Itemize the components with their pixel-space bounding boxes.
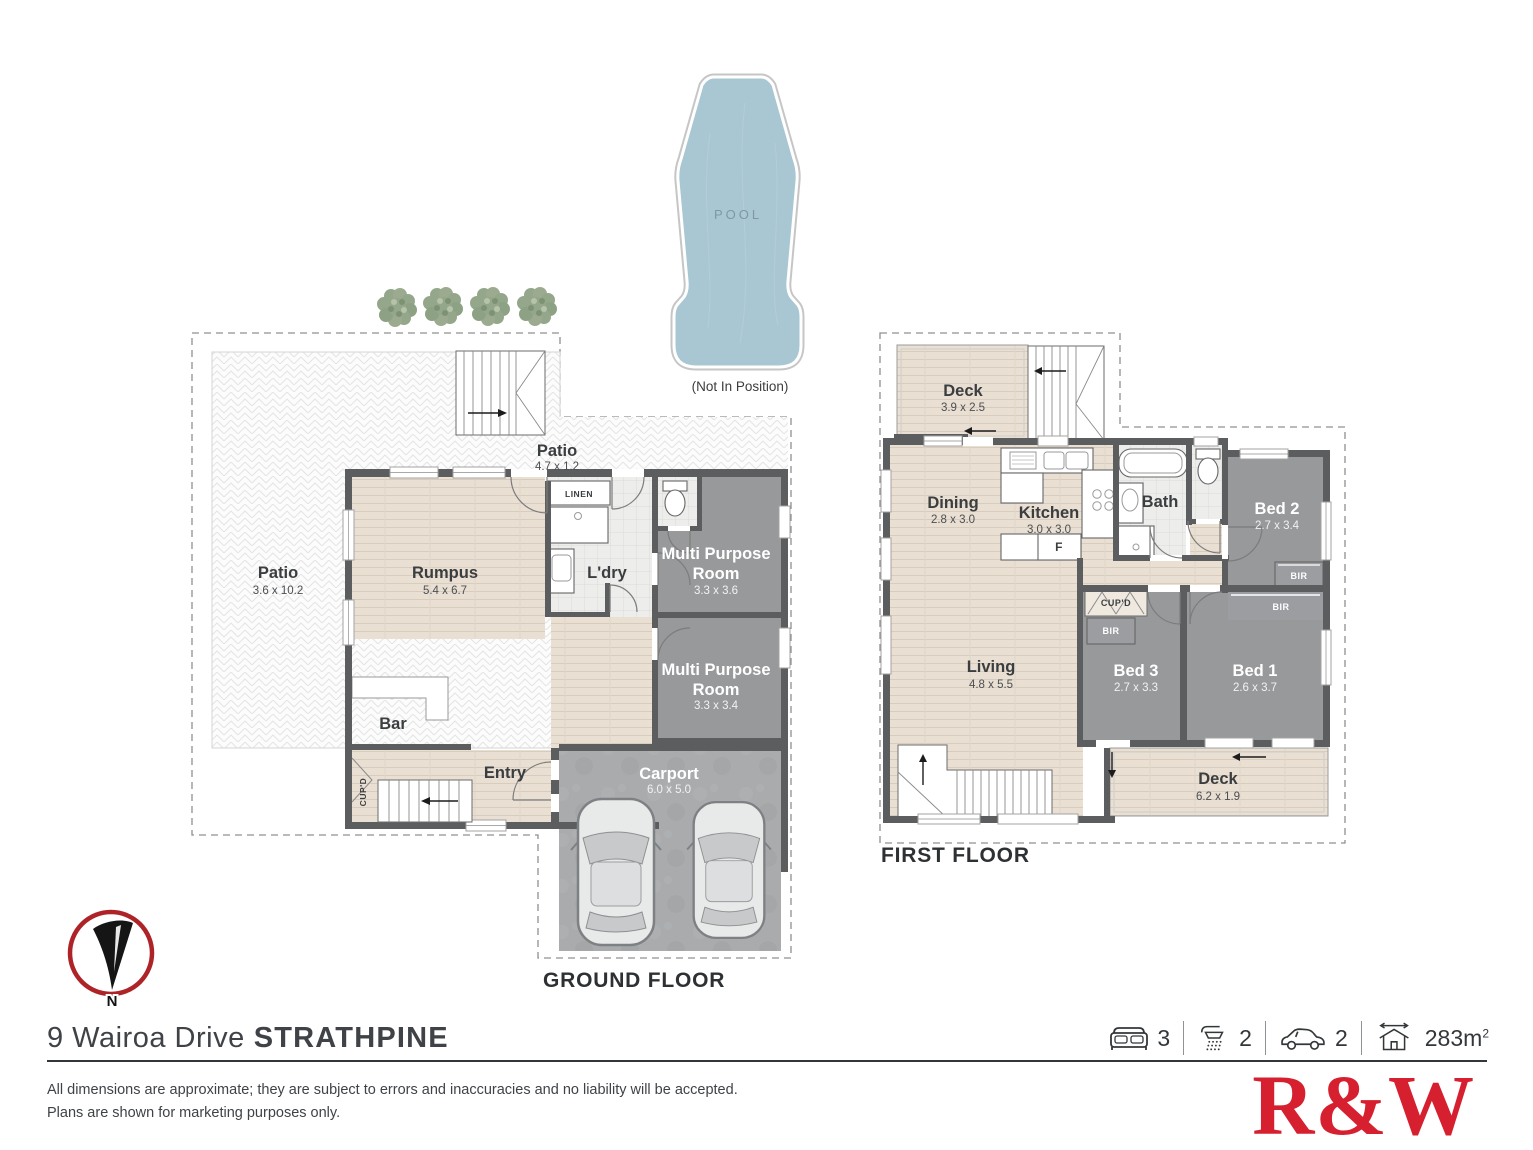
stat-divider — [1183, 1021, 1184, 1055]
cars-count: 2 — [1335, 1025, 1348, 1052]
patio-main-dims: 3.6 x 10.2 — [253, 585, 304, 597]
car-icon — [1279, 1024, 1327, 1052]
deck-bottom-label: Deck — [1198, 770, 1238, 788]
living-label: Living — [967, 658, 1016, 676]
north-arrow-icon — [93, 921, 133, 990]
tree-icon — [377, 288, 417, 327]
compass: N — [70, 912, 152, 1010]
bed1-dims: 2.6 x 3.7 — [1233, 682, 1277, 694]
cupboard-label-first: CUP'D — [1101, 598, 1131, 608]
stairs-entry — [378, 780, 472, 822]
laundry-sink-icon — [549, 549, 574, 593]
patio-strip-dims: 4.7 x 1.2 — [535, 461, 579, 473]
first-floor-plan: Deck 3.9 x 2.5 Dining 2.8 x 3.0 Kitchen … — [880, 333, 1345, 867]
hallway-floor — [551, 617, 652, 750]
bed2-dims: 2.7 x 3.4 — [1255, 520, 1300, 532]
kitchen-label: Kitchen — [1019, 504, 1080, 522]
bed-icon — [1109, 1023, 1149, 1053]
bathrooms-count: 2 — [1239, 1025, 1252, 1052]
pool-water — [674, 77, 801, 367]
address-street: 9 Wairoa Drive — [47, 1022, 245, 1054]
property-stats: 3 2 2 283m2 — [1109, 1016, 1489, 1060]
tree-icon — [423, 287, 463, 326]
ground-floor-plan: Patio 3.6 x 10.2 Patio 4.7 x 1.2 Rumpus … — [192, 333, 791, 992]
floorplan-page: POOL (Not In Position) — [0, 0, 1533, 1150]
dining-dims: 2.8 x 3.0 — [931, 514, 975, 526]
stat-divider — [1265, 1021, 1266, 1055]
bath-label: Bath — [1142, 493, 1179, 511]
patio-main-label: Patio — [258, 564, 298, 582]
first-floor-title: FIRST FLOOR — [881, 844, 1030, 867]
pool — [674, 77, 801, 367]
shower-icon — [1197, 1023, 1231, 1053]
mpr2-room — [655, 618, 781, 740]
bed1-label: Bed 1 — [1233, 662, 1278, 680]
disclaimer-line2: Plans are shown for marketing purposes o… — [47, 1102, 738, 1125]
pool-caption: (Not In Position) — [692, 379, 789, 394]
pool-label: POOL — [714, 207, 762, 222]
bed3-label: Bed 3 — [1114, 662, 1159, 680]
entry-label: Entry — [484, 764, 527, 782]
floorplan-drawing: POOL (Not In Position) — [0, 0, 1533, 1010]
laundry-label: L'dry — [587, 564, 628, 582]
shower-tray-icon — [1118, 526, 1154, 558]
rumpus-dims: 5.4 x 6.7 — [423, 585, 467, 597]
rumpus-label: Rumpus — [412, 564, 478, 582]
toilet-icon — [663, 481, 687, 516]
bed3-dims: 2.7 x 3.3 — [1114, 682, 1158, 694]
bir-label: BIR — [1103, 626, 1120, 636]
carport-label: Carport — [639, 765, 699, 783]
carport-dims: 6.0 x 5.0 — [647, 784, 691, 796]
tree-icon — [470, 287, 510, 326]
area-sup: 2 — [1482, 1026, 1489, 1040]
property-address: 9 Wairoa DriveSTRATHPINE — [47, 1022, 449, 1055]
mpr1-label: Multi Purpose — [661, 545, 770, 563]
deck-bottom-dims: 6.2 x 1.9 — [1196, 791, 1240, 803]
stat-area: 283m2 — [1375, 1021, 1489, 1055]
mpr2-label: Multi Purpose — [661, 661, 770, 679]
compass-north-label: N — [107, 993, 118, 1010]
ground-floor-title: GROUND FLOOR — [543, 969, 725, 992]
patio-strip-label: Patio — [537, 442, 577, 460]
dining-label: Dining — [927, 494, 978, 512]
bedrooms-count: 3 — [1157, 1025, 1170, 1052]
tree-row — [377, 287, 557, 327]
living-dims: 4.8 x 5.5 — [969, 679, 1013, 691]
mpr2-dims: 3.3 x 3.4 — [694, 700, 739, 712]
mpr1-dims: 3.3 x 3.6 — [694, 585, 738, 597]
stairs-patio — [456, 351, 545, 435]
linen-label: LINEN — [565, 489, 593, 499]
kitchen-dims: 3.0 x 3.0 — [1027, 524, 1071, 536]
mpr1-label2: Room — [693, 565, 740, 583]
area-value: 283m2 — [1425, 1025, 1489, 1052]
agency-logo: R&W — [1252, 1062, 1475, 1148]
stat-cars: 2 — [1279, 1024, 1348, 1052]
bir-label: BIR — [1273, 602, 1290, 612]
area-icon — [1375, 1021, 1417, 1055]
rumpus-floor — [352, 477, 545, 639]
stat-bathrooms: 2 — [1197, 1023, 1252, 1053]
bar-label: Bar — [379, 715, 407, 733]
mpr2-label2: Room — [693, 681, 740, 699]
bed2-label: Bed 2 — [1255, 500, 1300, 518]
address-suburb: STRATHPINE — [254, 1022, 449, 1054]
tree-icon — [517, 287, 557, 326]
stat-divider — [1361, 1021, 1362, 1055]
deck-top-dims: 3.9 x 2.5 — [941, 402, 985, 414]
fridge-label: F — [1055, 540, 1063, 554]
cupboard-label-ground: CUP'D — [358, 778, 368, 807]
bir-label: BIR — [1291, 571, 1308, 581]
disclaimer-line1: All dimensions are approximate; they are… — [47, 1079, 738, 1102]
stairs-first-top — [1028, 346, 1104, 440]
disclaimer: All dimensions are approximate; they are… — [47, 1079, 738, 1125]
car-top-view — [687, 802, 771, 938]
car-top-view — [571, 799, 661, 945]
deck-top-label: Deck — [943, 382, 983, 400]
stat-bedrooms: 3 — [1109, 1023, 1170, 1053]
